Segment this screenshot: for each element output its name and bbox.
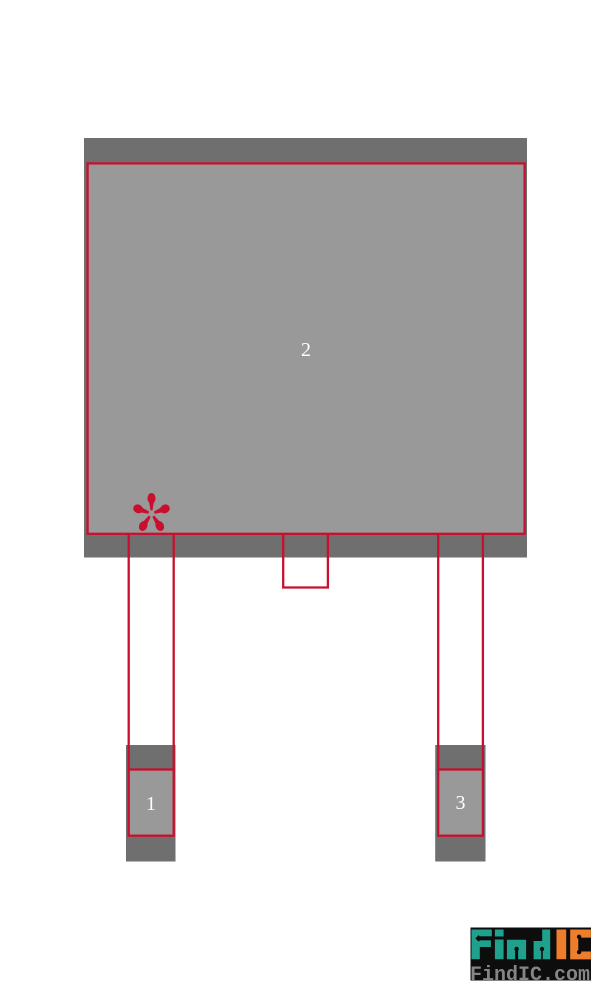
svg-text:2: 2 xyxy=(301,339,311,361)
svg-text:3: 3 xyxy=(456,792,466,814)
svg-text:FindIC.com: FindIC.com xyxy=(470,964,590,987)
svg-text:1: 1 xyxy=(146,793,156,815)
